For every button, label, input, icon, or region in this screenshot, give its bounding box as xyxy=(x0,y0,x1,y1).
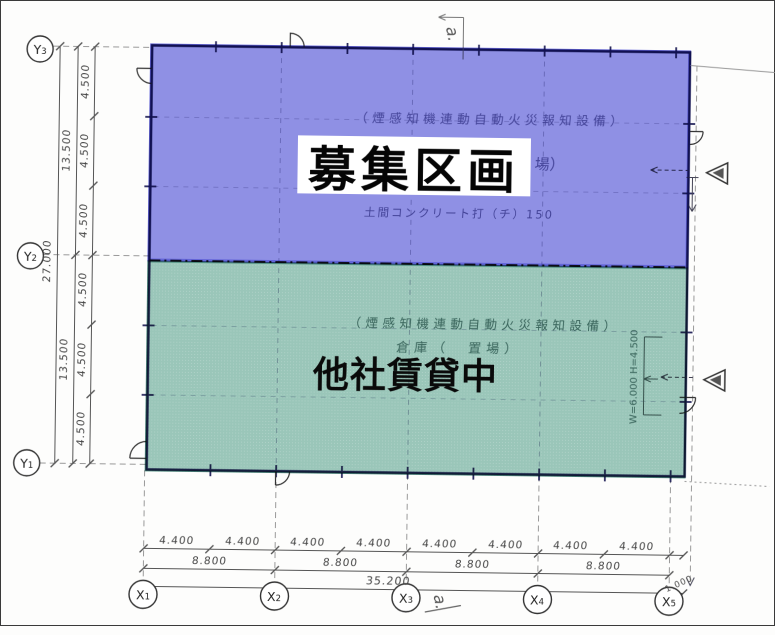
leased-door-size-note: W=6.000 H=4.500 xyxy=(628,327,643,427)
drawing-sheet: （煙感知機連動自動火災報知設備） 場） 募集区画 土間コンクリート打（チ）150… xyxy=(0,0,775,635)
leased-fire-note: （煙感知機連動自動火災報知設備） xyxy=(348,312,622,335)
dim-left-13500-2: 13.500 xyxy=(58,328,73,390)
dim-bottom-8800-4: 8.800 xyxy=(578,560,629,573)
scan-stray-line xyxy=(690,65,775,72)
available-region-label: 募集区画 xyxy=(297,135,531,196)
dim-bottom-overall-35200: 35.200 xyxy=(357,574,419,588)
grid-label-y2: Y2 xyxy=(17,247,43,265)
dim-left-4500-6: 4.500 xyxy=(75,398,90,460)
dim-left-4500-2: 4.500 xyxy=(78,120,93,182)
dim-bottom-8800-3: 8.800 xyxy=(447,558,498,571)
triangle-markers xyxy=(704,163,728,391)
grid-label-x2: X2 xyxy=(261,587,287,605)
dim-left-4500-5: 4.500 xyxy=(76,329,91,391)
dim-bottom-4400-7: 4.400 xyxy=(545,540,596,553)
grid-label-y3: Y3 xyxy=(27,40,53,58)
dim-bottom-4400-8: 4.400 xyxy=(611,540,662,553)
dim-bottom-4400-3: 4.400 xyxy=(282,536,333,549)
available-fire-note: （煙感知機連動自動火災報知設備） xyxy=(354,107,628,130)
grid-label-x5: X5 xyxy=(656,592,682,610)
dim-bottom-4400-2: 4.400 xyxy=(217,535,268,548)
available-floor-note: 土間コンクリート打（チ）150 xyxy=(363,204,554,222)
dim-bottom-4400-5: 4.400 xyxy=(414,538,465,551)
grid-label-x4: X4 xyxy=(524,590,550,608)
leased-region-label: 他社賃貸中 xyxy=(313,346,499,400)
dim-left-4500-1: 4.500 xyxy=(79,51,94,113)
grid-label-x3: X3 xyxy=(393,589,419,607)
dim-left-4500-3: 4.500 xyxy=(78,190,93,252)
scanned-floor-plan: { "regions": { "available": { "label": "… xyxy=(0,0,775,626)
dim-bottom-8800-2: 8.800 xyxy=(315,557,366,570)
dim-left-13500-1: 13.500 xyxy=(60,119,75,181)
dim-bottom-4400-6: 4.400 xyxy=(480,539,531,552)
dim-bottom-4400-1: 4.400 xyxy=(151,534,202,547)
grid-label-y1: Y1 xyxy=(14,454,40,472)
dim-left-4500-4: 4.500 xyxy=(77,259,92,321)
dim-bottom-8800-1: 8.800 xyxy=(184,555,235,568)
grid-label-x1: X1 xyxy=(130,585,156,603)
available-text-fragment: 場） xyxy=(534,153,566,174)
dim-bottom-4400-4: 4.400 xyxy=(348,537,399,550)
